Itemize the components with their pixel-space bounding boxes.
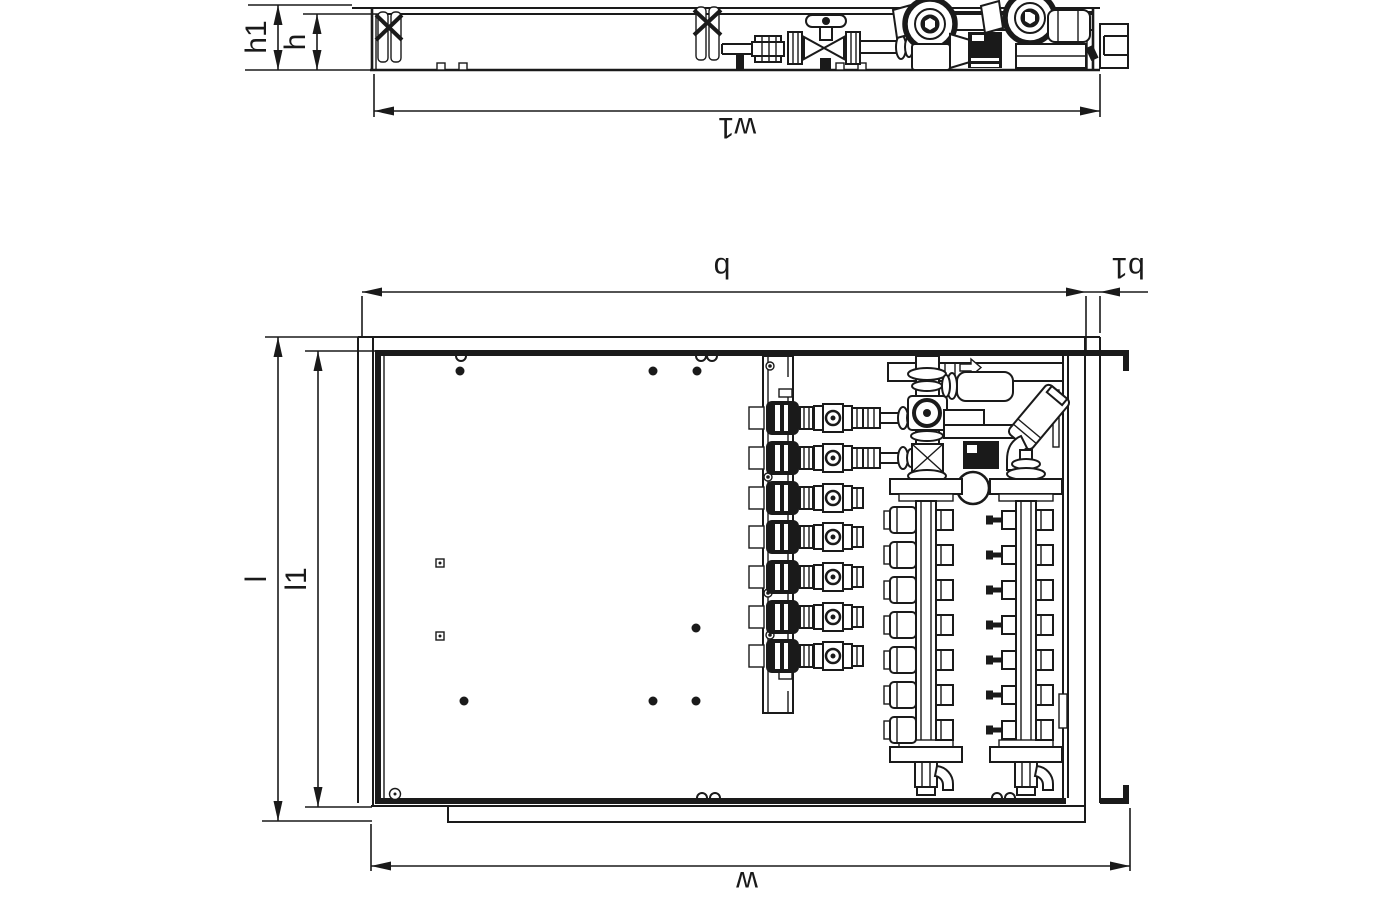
drawing-canvas: h1 h w1 bbox=[0, 0, 1400, 900]
clip-notch bbox=[459, 63, 467, 70]
dim-label-b1: b1 bbox=[1111, 251, 1144, 284]
dim-label-w1: w1 bbox=[718, 111, 757, 144]
dimension-h: h bbox=[279, 14, 378, 70]
pump-motor bbox=[957, 372, 1013, 401]
front-view: b b1 l l1 w bbox=[240, 251, 1148, 898]
dimension-l1: l1 bbox=[280, 351, 375, 807]
wall-bracket-top bbox=[1100, 24, 1128, 68]
mount-hook-top bbox=[1086, 353, 1126, 371]
dim-label-l: l bbox=[240, 576, 273, 583]
pipe-pair-left bbox=[376, 12, 402, 62]
manifold-right bbox=[986, 479, 1062, 795]
bottom-cover-plate bbox=[448, 806, 1085, 822]
dim-label-l1: l1 bbox=[280, 567, 313, 590]
clip-notch bbox=[836, 63, 844, 70]
dimension-w1: w1 bbox=[374, 74, 1100, 144]
dim-label-h: h bbox=[279, 34, 312, 51]
mount-hook-bottom bbox=[1100, 785, 1126, 801]
ball-valve-top-view bbox=[722, 15, 913, 70]
pump-group-top-view bbox=[893, 0, 1099, 70]
dim-label-h1: h1 bbox=[240, 20, 273, 53]
clip-notch bbox=[437, 63, 445, 70]
dim-label-b: b bbox=[714, 251, 731, 284]
technical-drawing: h1 h w1 bbox=[0, 0, 1400, 900]
dimension-b: b bbox=[362, 251, 1086, 350]
dimension-b1: b1 bbox=[1086, 251, 1148, 333]
manifold-left bbox=[884, 479, 962, 795]
dim-label-w: w bbox=[736, 865, 759, 898]
top-view: h1 h w1 bbox=[240, 0, 1128, 144]
